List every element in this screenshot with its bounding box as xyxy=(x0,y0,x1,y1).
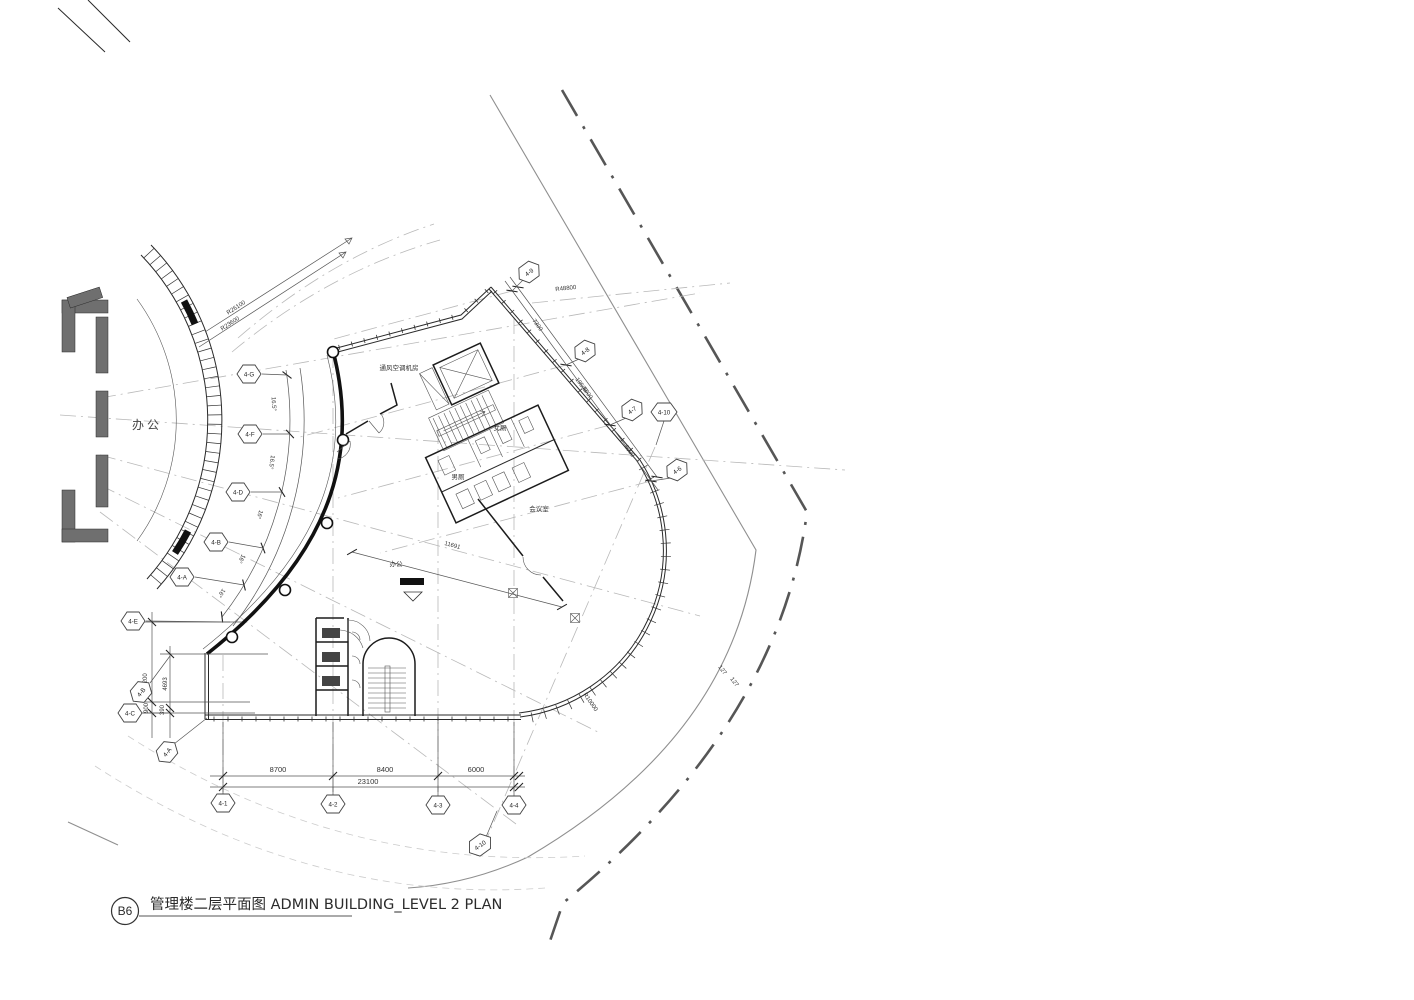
svg-text:4-D: 4-D xyxy=(233,489,244,496)
grid-bubble-410: 4-10 xyxy=(651,403,677,421)
core-walls xyxy=(62,287,108,542)
dim-left-3: 900 xyxy=(144,702,150,713)
radius-arc-2 xyxy=(232,240,440,352)
svg-text:4-4: 4-4 xyxy=(510,802,520,809)
room-label-office: 办公 xyxy=(132,417,162,432)
dim-angle-2: 16.5° xyxy=(267,455,275,470)
radius-label-2: R23600 xyxy=(220,316,241,333)
facade-mullion-ticks xyxy=(214,289,671,722)
dim-left-2: 4693 xyxy=(163,677,169,691)
svg-text:4-C: 4-C xyxy=(125,710,136,717)
admin-building xyxy=(203,287,671,722)
dim-bottom-1: 8700 xyxy=(270,765,287,774)
dim-bottom-2: 8400 xyxy=(377,765,394,774)
corner-arc-outer xyxy=(520,460,666,717)
mech-room-wall xyxy=(346,383,397,434)
grid-bubble-41: 4-1 xyxy=(211,794,235,812)
grid-bubble-49: 4-9 xyxy=(514,258,544,287)
drawing-number: B6 xyxy=(118,904,133,918)
grid-bubble-4a: 4-A xyxy=(170,568,194,586)
site-boundary-line xyxy=(549,90,807,944)
legend-bar xyxy=(400,578,424,585)
floor-plan-sheet: 办公 xyxy=(0,0,1414,1000)
mech-door xyxy=(369,414,384,433)
dim-angle-5: 16° xyxy=(215,587,225,598)
dim-bottom-total: 23100 xyxy=(358,777,379,786)
ring-inner-arc xyxy=(141,255,208,579)
stair-upper xyxy=(429,390,504,451)
svg-text:4-1: 4-1 xyxy=(219,800,229,807)
drawing-title: 管理楼二层平面图 ADMIN BUILDING_LEVEL 2 PLAN xyxy=(150,896,502,913)
left-corner-wall xyxy=(205,653,209,719)
top-wall-outer xyxy=(333,287,491,349)
site-dashed-arc-2 xyxy=(95,766,545,890)
grid-bubble-46: 4-6 xyxy=(662,456,692,485)
grid-line-47 xyxy=(338,425,610,498)
grid-bubble-44: 4-4 xyxy=(502,796,526,814)
curved-wall-inner-line xyxy=(203,355,336,649)
dim-angle-4: 16° xyxy=(236,553,246,564)
annotations: R26100 R23600 R48800 127 127 R10000 xyxy=(199,238,740,713)
road-offset-1: 127 xyxy=(716,665,727,677)
right-wall-inner xyxy=(489,289,638,462)
road-offset-2: 127 xyxy=(728,677,739,689)
svg-text:4-E: 4-E xyxy=(128,618,138,625)
grid-line-46 xyxy=(380,481,651,553)
admin-interior xyxy=(316,343,580,716)
floor-plan-svg: 办公 xyxy=(0,0,1414,1000)
svg-text:4-B: 4-B xyxy=(211,539,221,546)
room-label-women-wc: 女厕 xyxy=(494,423,508,432)
triangle-marker xyxy=(404,592,422,601)
grid-bubble-4e: 4-E xyxy=(121,612,145,630)
grid-bubble-4g: 4-G xyxy=(237,365,261,383)
radius-label-3: R48800 xyxy=(555,285,577,293)
radius-arc-1 xyxy=(238,224,434,338)
grid-bubble-4d: 4-D xyxy=(226,483,250,501)
room-label-men-wc: 男厕 xyxy=(452,473,466,481)
dim-angle-3: 16° xyxy=(255,509,264,520)
svg-text:4-F: 4-F xyxy=(245,431,255,438)
column-marker-2 xyxy=(571,614,580,623)
svg-text:4-3: 4-3 xyxy=(434,802,444,809)
grid-line-4d xyxy=(100,455,700,616)
lower-rooms xyxy=(316,618,370,716)
stair-lower xyxy=(340,630,415,716)
svg-text:4-G: 4-G xyxy=(244,371,255,378)
grid-bubble-43: 4-3 xyxy=(426,796,450,814)
room-label-meeting: 会议室 xyxy=(529,504,549,513)
grid-bubble-4c: 4-C xyxy=(118,704,142,722)
grid-bubble-42: 4-2 xyxy=(321,795,345,813)
radius-label-1: R26100 xyxy=(226,300,247,317)
dim-angle-1: 16.5° xyxy=(270,397,277,412)
dim-bottom-3: 6000 xyxy=(468,765,485,774)
road-edge-line xyxy=(408,95,756,888)
site-segment xyxy=(68,822,118,845)
grid-bubble-410-end: 4-10 xyxy=(464,830,496,860)
grid-line-410 xyxy=(487,447,655,838)
svg-text:4-10: 4-10 xyxy=(658,409,671,416)
title-block: B6 管理楼二层平面图 ADMIN BUILDING_LEVEL 2 PLAN xyxy=(112,896,503,925)
meeting-room-wall xyxy=(478,499,563,601)
grid-bubbles: 4-G 4-F 4-D 4-B 4-A 4-E 4-B 4-C 4-A 4-1 … xyxy=(118,258,692,860)
grid-bubble-4b: 4-B xyxy=(204,533,228,551)
top-wall-inner xyxy=(334,291,492,353)
svg-text:4-A: 4-A xyxy=(177,574,188,581)
site-corner-marks xyxy=(58,0,130,52)
room-label-mech: 通风空调机房 xyxy=(380,363,419,372)
dim-left-4: 390 xyxy=(160,704,166,715)
left-building: 办公 xyxy=(62,245,222,589)
svg-text:4-2: 4-2 xyxy=(329,801,339,808)
